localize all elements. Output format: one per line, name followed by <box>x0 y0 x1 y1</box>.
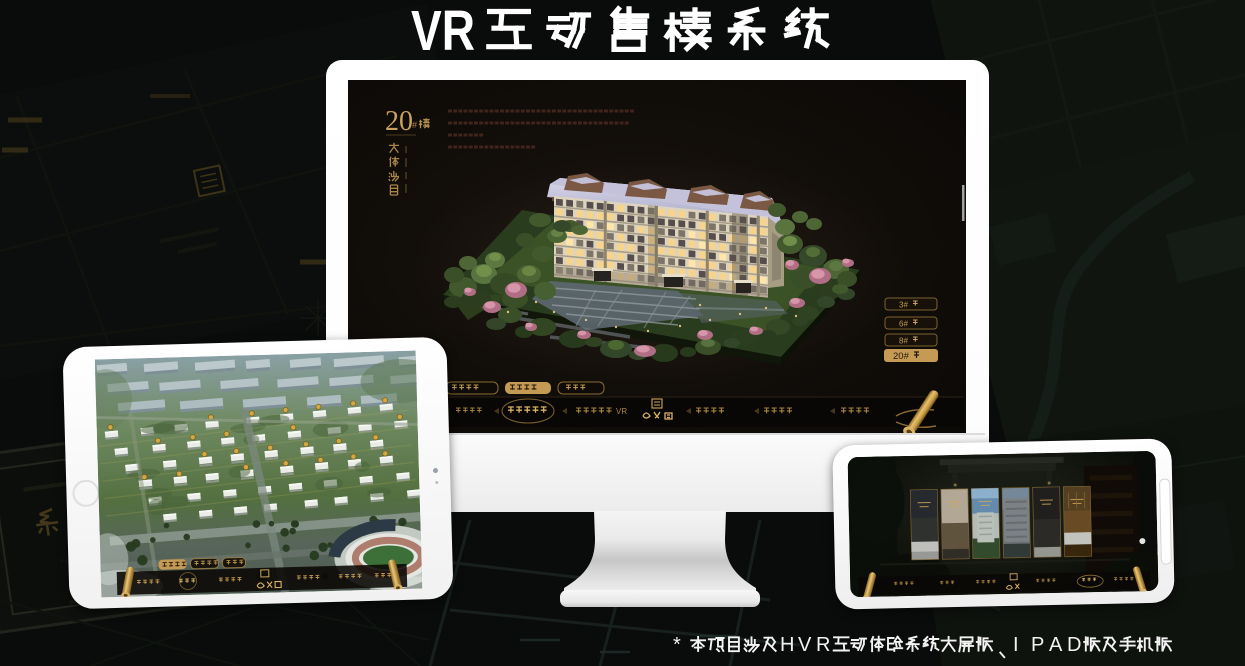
svg-text:#: # <box>412 120 417 130</box>
svg-text:D: D <box>1067 634 1081 656</box>
svg-text:6#: 6# <box>899 320 908 329</box>
svg-text:20#: 20# <box>893 351 910 362</box>
svg-text:VR: VR <box>616 407 627 416</box>
svg-text:A: A <box>1049 634 1063 656</box>
svg-text:VR: VR <box>411 0 475 60</box>
svg-text:20: 20 <box>385 106 413 137</box>
svg-text:R: R <box>816 634 830 656</box>
svg-text:3#: 3# <box>899 301 908 310</box>
svg-text:8#: 8# <box>899 337 908 346</box>
svg-text:H: H <box>780 634 794 656</box>
svg-text:I: I <box>1013 634 1019 656</box>
svg-text:P: P <box>1031 634 1044 656</box>
svg-text:V: V <box>798 634 812 656</box>
svg-text:*: * <box>673 634 681 656</box>
